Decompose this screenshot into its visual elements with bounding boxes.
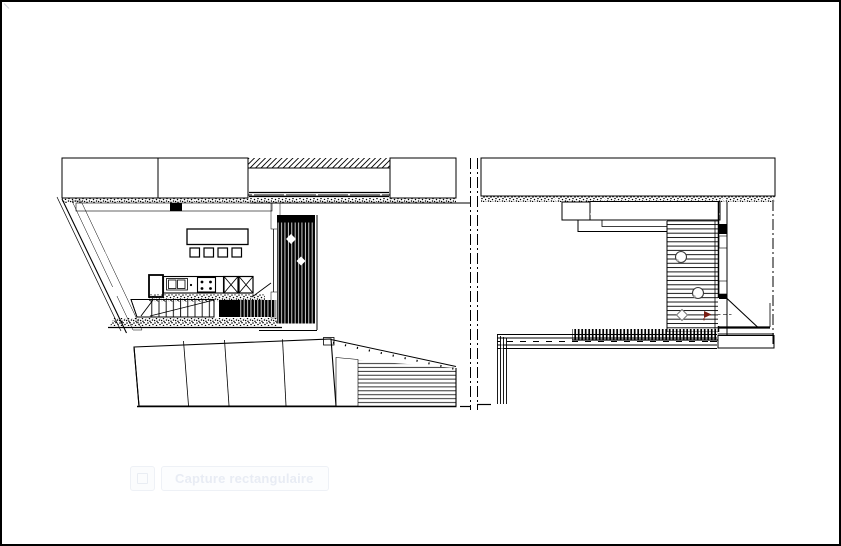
capture-tooltip: Capture rectangulaire — [130, 466, 329, 491]
threshold-slab — [718, 336, 774, 349]
party-wall-band-right — [481, 158, 775, 202]
left-roof-plan — [134, 338, 470, 407]
screenshot-canvas: Capture rectangulaire — [0, 0, 841, 546]
entrance-door-swing — [718, 299, 770, 328]
architectural-drawing — [0, 0, 841, 546]
hob-x-modules — [224, 277, 253, 294]
party-wall-band-left — [62, 158, 470, 203]
retaining-wall-band — [477, 335, 717, 405]
staircase — [131, 300, 214, 318]
slanted-west-wall — [57, 197, 142, 333]
chairs — [190, 248, 242, 257]
left-floor-plan — [57, 197, 317, 333]
selection-rectangle-icon — [137, 473, 148, 484]
slatted-terrace-right — [667, 221, 718, 332]
slat-band — [590, 202, 720, 221]
solid-core — [219, 300, 240, 317]
roof-deck-wedge — [358, 360, 456, 406]
kitchen-counter — [149, 275, 265, 302]
band-opening — [248, 168, 390, 195]
east-wall — [719, 202, 728, 335]
dining-table — [187, 229, 248, 245]
right-floor-plan — [477, 202, 774, 405]
refrigerator — [149, 275, 163, 297]
capture-tooltip-label: Capture rectangulaire — [161, 466, 329, 491]
corner-artifact — [4, 4, 9, 9]
capture-mode-icon[interactable] — [130, 466, 155, 491]
cooktop — [198, 278, 216, 293]
